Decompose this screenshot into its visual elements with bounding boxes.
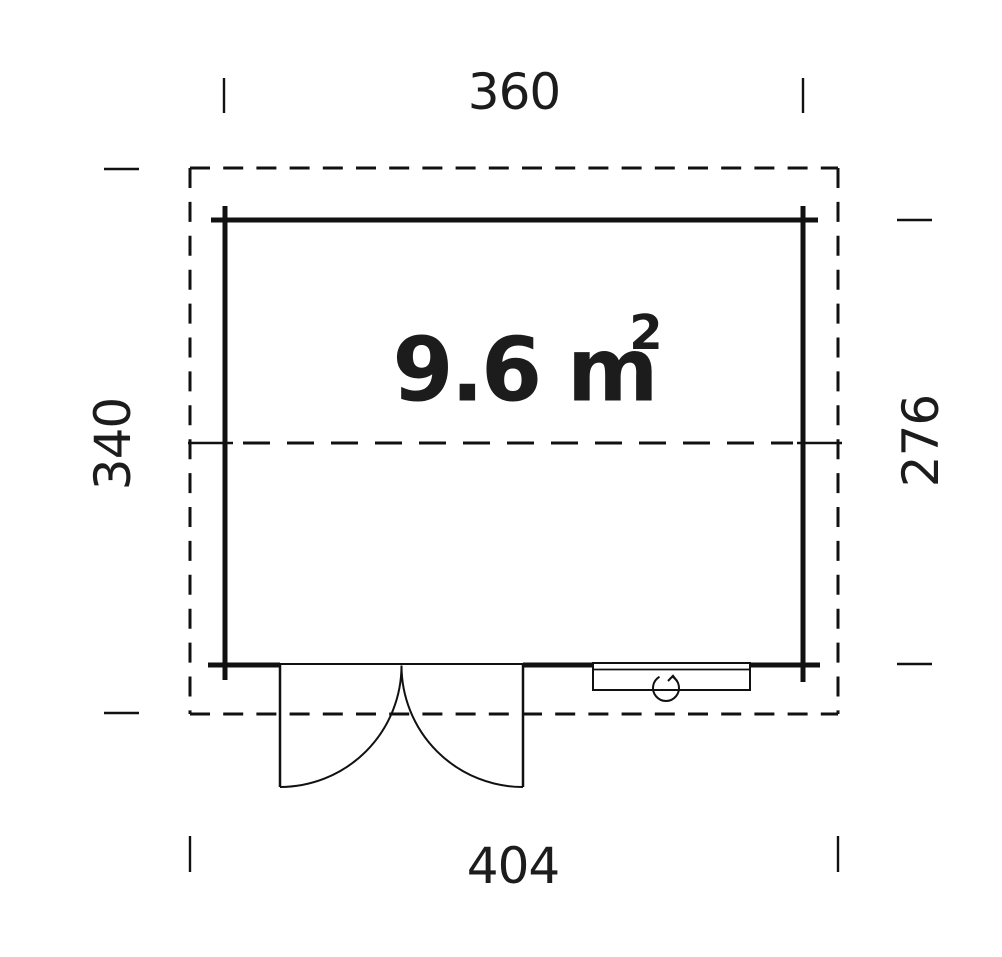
tilt-window-pivot-icon	[593, 663, 750, 701]
area-value: 9.6 m	[392, 319, 655, 422]
dimension-label-bottom: 404	[467, 837, 559, 895]
dimension-label-right: 276	[892, 395, 950, 487]
dimension-ticks	[104, 78, 932, 872]
floor-plan-drawing: 360 404 340 276 9.6 m 2	[0, 0, 1002, 957]
area-exponent: 2	[629, 305, 662, 361]
door-swing-arc-right	[402, 666, 524, 788]
floor-plan-canvas: 360 404 340 276 9.6 m 2	[0, 0, 1002, 957]
dimension-label-left: 340	[84, 398, 142, 490]
door-swing-arc-left	[280, 666, 402, 788]
area-label: 9.6 m 2	[392, 305, 662, 422]
dimension-label-top: 360	[468, 63, 560, 121]
double-door-swing-icon	[280, 664, 523, 787]
roof-overhang-dashed-outline	[190, 168, 838, 714]
